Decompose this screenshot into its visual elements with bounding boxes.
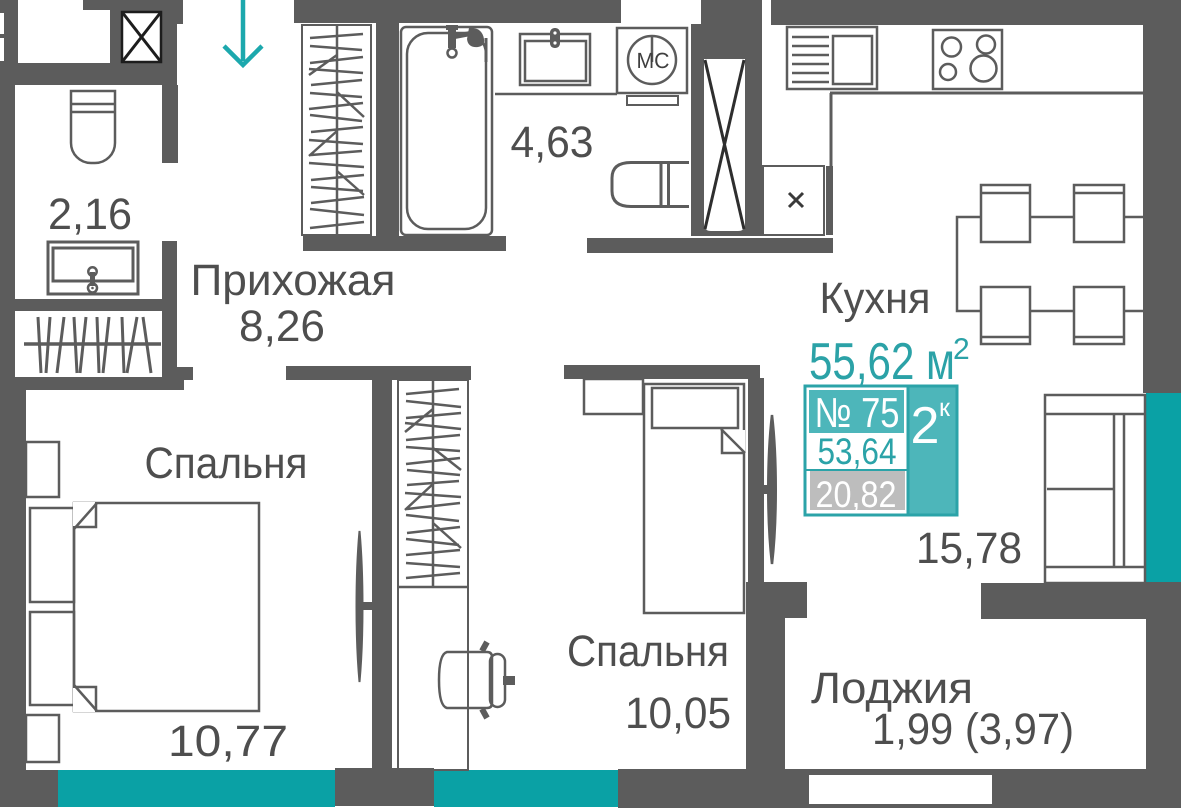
svg-text:4,63: 4,63 <box>511 118 594 167</box>
svg-text:1,99 (3,97): 1,99 (3,97) <box>872 705 1074 754</box>
svg-text:20,82: 20,82 <box>816 474 897 515</box>
svg-text:53,64: 53,64 <box>818 431 897 472</box>
svg-text:Спальня: Спальня <box>145 439 308 488</box>
svg-text:МС: МС <box>637 48 670 73</box>
svg-text:№ 75: № 75 <box>815 389 900 436</box>
svg-text:8,26: 8,26 <box>239 302 325 351</box>
svg-text:2: 2 <box>911 397 940 455</box>
svg-text:Прихожая: Прихожая <box>191 256 396 305</box>
svg-text:Кухня: Кухня <box>820 274 931 323</box>
svg-text:Спальня: Спальня <box>567 627 729 676</box>
svg-text:2: 2 <box>953 333 970 366</box>
svg-text:10,77: 10,77 <box>168 717 288 766</box>
svg-text:15,78: 15,78 <box>916 524 1022 573</box>
svg-text:55,62 м: 55,62 м <box>809 333 955 391</box>
svg-text:к: к <box>939 394 951 422</box>
svg-text:2,16: 2,16 <box>48 190 132 239</box>
svg-text:10,05: 10,05 <box>625 689 731 738</box>
